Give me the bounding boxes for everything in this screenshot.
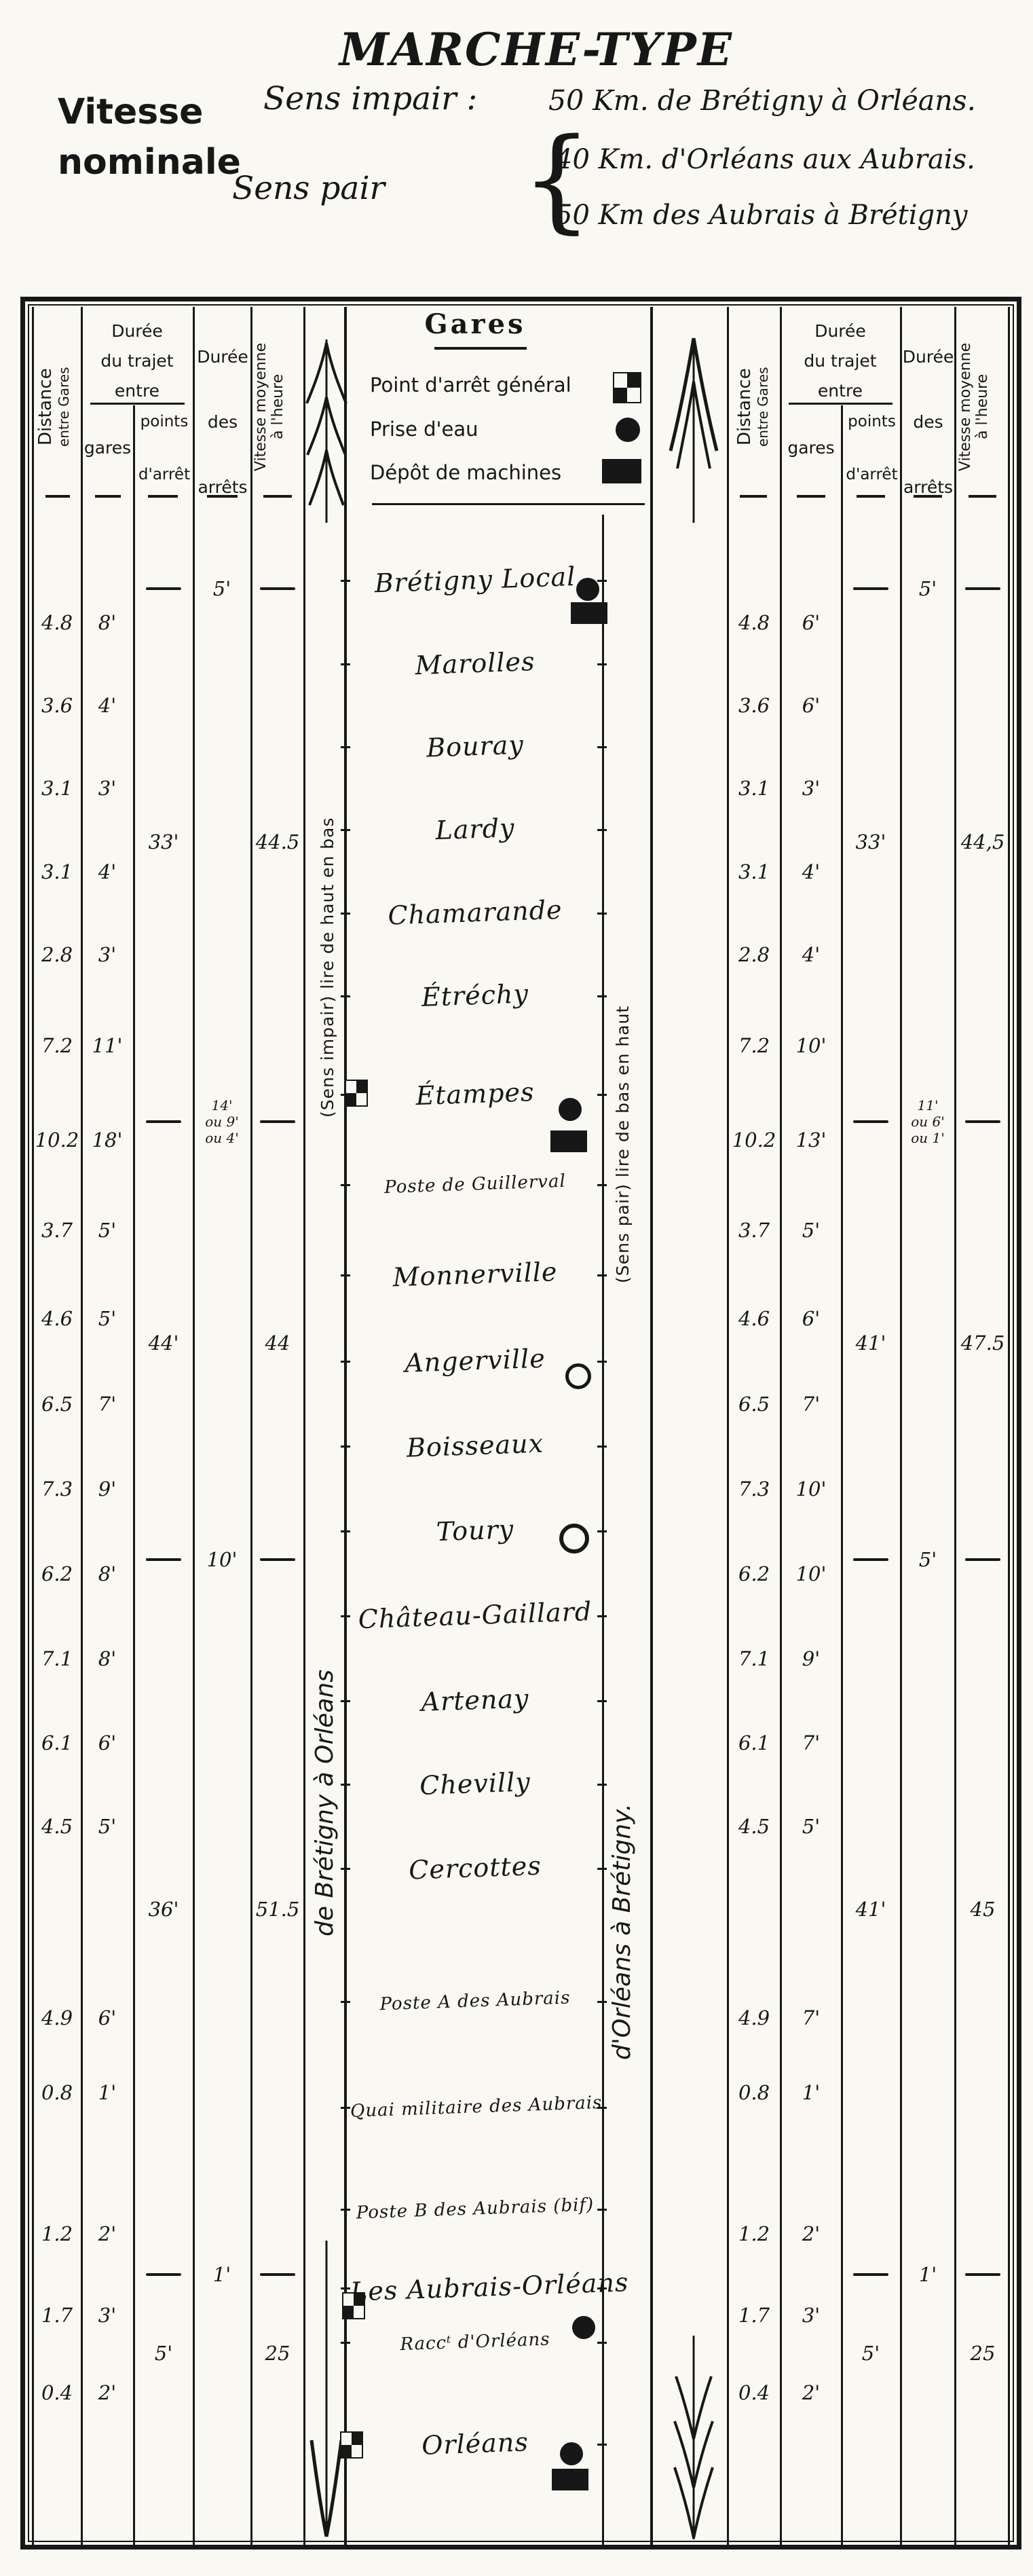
right-points-subheader-2: d'arrêt [843,466,901,483]
header-underline-dash [148,495,178,498]
station-tick [341,829,350,831]
station-tick [597,2209,607,2211]
station-tick [597,2444,607,2446]
table-value: 7.2 [738,1034,770,1057]
table-value: 5' [802,1815,820,1838]
header-underline-dash [263,495,292,498]
table-value: 11' [92,1034,123,1057]
table-value: 33' [856,830,886,853]
table-value: 25 [265,2342,290,2365]
circle-icon [576,578,599,601]
table-value: 14'ou 9'ou 4' [205,1097,239,1146]
table-value: 6.1 [738,1731,770,1754]
table-value: 2.8 [41,943,73,966]
station-tick [597,1094,607,1096]
sens-pair-value-1: 40 Km. d'Orléans aux Aubrais. [555,144,975,175]
legend-item-label: Dépôt de machines [370,461,561,484]
table-value: 1' [919,2263,937,2286]
station-tick [597,2107,607,2109]
table-column-line [650,307,653,2545]
table-value: 8' [98,1647,116,1670]
table-value: 5' [213,577,231,600]
table-value: 7.1 [41,1647,73,1670]
table-rule [372,503,645,505]
station-tick [341,1184,350,1186]
table-value: 3.6 [41,694,73,717]
table-value: 7' [802,1731,820,1754]
table-value: 3.7 [738,1219,770,1242]
table-value: 1' [98,2081,116,2104]
table-value: 5' [98,1815,116,1838]
table-value: 33' [149,830,179,853]
station-tick [597,2001,607,2003]
left-points-subheader-1: points [135,413,193,430]
table-value: 10.2 [732,1128,776,1152]
station-tick [597,2342,607,2344]
table-value: 5' [919,577,937,600]
table-value: 45 [971,1898,996,1921]
table-value: 4.6 [738,1307,770,1330]
header-underline-dash [740,495,767,498]
table-value: 13' [796,1128,827,1152]
legend-item-label: Point d'arrêt général [370,373,571,397]
table-value: 36' [149,1898,179,1921]
station-tick [341,2209,350,2211]
rect-icon [552,2469,588,2490]
table-value: 6' [802,694,820,717]
left-vitesse-header: Vitesse moyenne à l'heure [252,311,301,502]
table-value: 10' [796,1477,827,1501]
table-value: 0.8 [738,2081,770,2104]
stop-dash [853,2273,888,2276]
table-value: 2' [98,2381,116,2404]
table-value: 6.5 [41,1393,73,1416]
table-value: 10' [796,1562,827,1585]
table-column-line [81,307,83,2545]
point-arret-general-icon [613,372,641,403]
vitesse-line1: Vitesse [58,87,241,137]
table-column-line [193,307,195,2545]
table-value: 7' [802,1393,820,1416]
checkered-icon [345,1080,368,1107]
table-value: 3.7 [41,1219,73,1242]
table-rule [90,403,185,405]
station-tick [341,1784,350,1786]
table-value: 41' [856,1898,886,1921]
table-value: 5' [919,1548,937,1571]
table-value: 6' [98,2006,116,2029]
table-value: 44 [265,1331,290,1355]
table-value: 6.2 [738,1562,770,1585]
stop-dash [260,2273,295,2276]
table-column-line [250,307,252,2545]
left-gares-subheader: gares [81,438,134,458]
station-tick [341,2107,350,2109]
header-underline-dash [45,495,70,498]
table-value: 5' [155,2342,172,2365]
header-underline-dash [797,495,825,498]
header-underline-dash [969,495,996,498]
station-tick [341,2001,350,2003]
table-value: 5' [98,1219,116,1242]
station-tick [597,2287,607,2289]
stop-dash [853,1558,888,1561]
table-value: 5' [862,2342,880,2365]
table-value: 2' [98,2222,116,2245]
right-gares-subheader: gares [781,438,842,458]
table-value: 44,5 [961,830,1005,853]
table-column-line [602,515,604,2545]
table-column-line [841,405,843,2545]
table-column-line [32,307,34,2545]
table-value: 6' [802,611,820,634]
station-tick [341,1700,350,1702]
stop-dash [965,2273,1000,2276]
sens-pair-label: Sens pair [232,170,385,207]
stop-dash [965,587,1000,590]
station-tick [597,1361,607,1363]
table-value: 1' [213,2263,231,2286]
table-value: 3' [802,777,820,800]
table-value: 41' [856,1331,886,1355]
station-tick [341,1868,350,1870]
station-tick [341,1530,350,1532]
table-value: 7.3 [41,1477,73,1501]
station-tick [597,580,607,582]
stop-dash [965,1558,1000,1561]
table-value: 10.2 [35,1128,79,1152]
prise-eau-icon [616,418,640,442]
table-value: 7.2 [41,1034,73,1057]
station-tick [597,1868,607,1870]
station-tick [341,913,350,915]
table-value: 3' [98,777,116,800]
table-value: 6.5 [738,1393,770,1416]
ring-icon [565,1363,591,1389]
table-value: 6.1 [41,1731,73,1754]
table-value: 44.5 [256,830,300,853]
left-points-subheader-2: d'arrêt [135,466,193,483]
right-points-subheader-1: points [843,413,901,430]
table-rule [434,347,527,350]
circle-icon [560,2442,583,2465]
checkered-icon [342,2292,365,2319]
table-value: 0.8 [41,2081,73,2104]
table-value: 6' [802,1307,820,1330]
left-duree-trajet-header: Durée du trajet entre [83,316,191,406]
document-page: MARCHE-TYPE Vitesse nominale Sens impair… [0,0,1033,2576]
table-value: 4.6 [41,1307,73,1330]
left-route-label: de Brétigny à Orléans [311,1460,343,2146]
header-underline-dash [95,495,121,498]
table-value: 0.4 [738,2381,770,2404]
table-value: 4' [802,860,820,883]
station-tick [341,746,350,748]
table-column-line [900,307,902,2545]
table-value: 1.2 [738,2222,770,2245]
header-underline-dash [207,495,238,498]
station-tick [597,663,607,665]
table-rule [789,403,893,405]
sens-impair-label: Sens impair : [263,80,477,117]
right-distance-header: Distance entre Gares [734,311,779,502]
stop-dash [965,1120,1000,1123]
station-tick [597,995,607,997]
vitesse-nominale-label: Vitesse nominale [58,87,241,187]
table-value: 4.5 [738,1815,770,1838]
sens-impair-value: 50 Km. de Brétigny à Orléans. [548,84,976,117]
table-value: 3.6 [738,694,770,717]
table-column-line [1008,307,1010,2545]
depot-machines-icon [602,459,641,483]
station-tick [597,746,607,748]
station-tick [597,829,607,831]
table-value: 9' [98,1477,116,1501]
stop-dash [853,587,888,590]
table-value: 10' [796,1034,827,1057]
table-value: 3' [98,943,116,966]
right-vitesse-header: Vitesse moyenne à l'heure [957,311,1006,502]
right-sens-label: (Sens pair) lire de bas en haut [613,828,636,1460]
table-value: 44' [149,1331,179,1355]
table-value: 7' [98,1393,116,1416]
station-tick [597,1274,607,1276]
station-tick [341,1615,350,1617]
stop-dash [853,1120,888,1123]
station-tick [341,663,350,665]
station-tick [597,1446,607,1448]
stop-dash [260,1120,295,1123]
station-tick [597,913,607,915]
station-tick [341,2342,350,2344]
page-title: MARCHE-TYPE [312,23,760,76]
table-value: 7' [802,2006,820,2029]
table-value: 3.1 [41,777,73,800]
station-tick [341,1446,350,1448]
vitesse-line2: nominale [58,137,241,187]
left-duree-arrets-header: Durée des arrêts [195,325,250,520]
table-value: 8' [98,611,116,634]
table-value: 2' [802,2222,820,2245]
table-value: 3.1 [738,777,770,800]
table-column-line [727,307,729,2545]
table-value: 1.2 [41,2222,73,2245]
table-value: 18' [92,1128,123,1152]
left-distance-header: Distance entre Gares [35,311,80,502]
rect-icon [571,602,607,624]
table-value: 3' [802,2304,820,2327]
station-tick [341,1274,350,1276]
stop-dash [146,587,181,590]
table-value: 6.2 [41,1562,73,1585]
ring-bold-icon [559,1524,589,1553]
table-value: 4.8 [738,611,770,634]
station-tick [341,580,350,582]
right-duree-arrets-header: Durée des arrêts [902,325,954,520]
table-value: 10' [207,1548,238,1571]
station-tick [597,1184,607,1186]
checkered-icon [340,2431,363,2459]
table-column-line [780,307,782,2545]
table-value: 2.8 [738,943,770,966]
stop-dash [146,2273,181,2276]
header-underline-dash [857,495,885,498]
table-value: 3.1 [41,860,73,883]
table-column-line [303,307,305,2545]
stop-dash [260,1558,295,1561]
station-tick [341,995,350,997]
table-value: 4' [802,943,820,966]
right-duree-trajet-header: Durée du trajet entre [782,316,899,406]
table-value: 3' [98,2304,116,2327]
left-sens-label: (Sens impair) lire de haut en bas [318,631,341,1304]
station-tick [597,1700,607,1702]
legend-title: Gares [348,308,603,340]
table-value: 7.1 [738,1647,770,1670]
rect-icon [550,1130,587,1152]
table-value: 2' [802,2381,820,2404]
table-value: 51.5 [256,1898,300,1921]
table-value: 1' [802,2081,820,2104]
table-value: 4.9 [41,2006,73,2029]
station-tick [597,1615,607,1617]
station-tick [597,1530,607,1532]
right-route-label: d'Orléans à Brétigny. [608,1575,641,2288]
table-value: 8' [98,1562,116,1585]
table-value: 4.9 [738,2006,770,2029]
stop-dash [146,1120,181,1123]
station-tick [341,1361,350,1363]
table-value: 5' [98,1307,116,1330]
table-value: 4.8 [41,611,73,634]
table-column-line [133,405,135,2545]
sens-pair-value-2: 50 Km des Aubrais à Brétigny [555,200,968,231]
table-value: 6' [98,1731,116,1754]
table-value: 11'ou 6'ou 1' [911,1097,945,1146]
table-value: 1.7 [738,2304,770,2327]
table-value: 7.3 [738,1477,770,1501]
circle-icon [559,1098,582,1121]
table-value: 3.1 [738,860,770,883]
table-value: 9' [802,1647,820,1670]
table-value: 47.5 [961,1331,1005,1355]
table-value: 4' [98,694,116,717]
station-tick [341,2287,350,2289]
table-value: 4' [98,860,116,883]
table-column-line [954,307,956,2545]
table-value: 1.7 [41,2304,73,2327]
table-value: 0.4 [41,2381,73,2404]
table-value: 25 [971,2342,996,2365]
header-underline-dash [914,495,942,498]
table-value: 4.5 [41,1815,73,1838]
table-value: 5' [802,1219,820,1242]
station-tick [597,1784,607,1786]
stop-dash [260,587,295,590]
legend-item-label: Prise d'eau [370,418,478,441]
stop-dash [146,1558,181,1561]
